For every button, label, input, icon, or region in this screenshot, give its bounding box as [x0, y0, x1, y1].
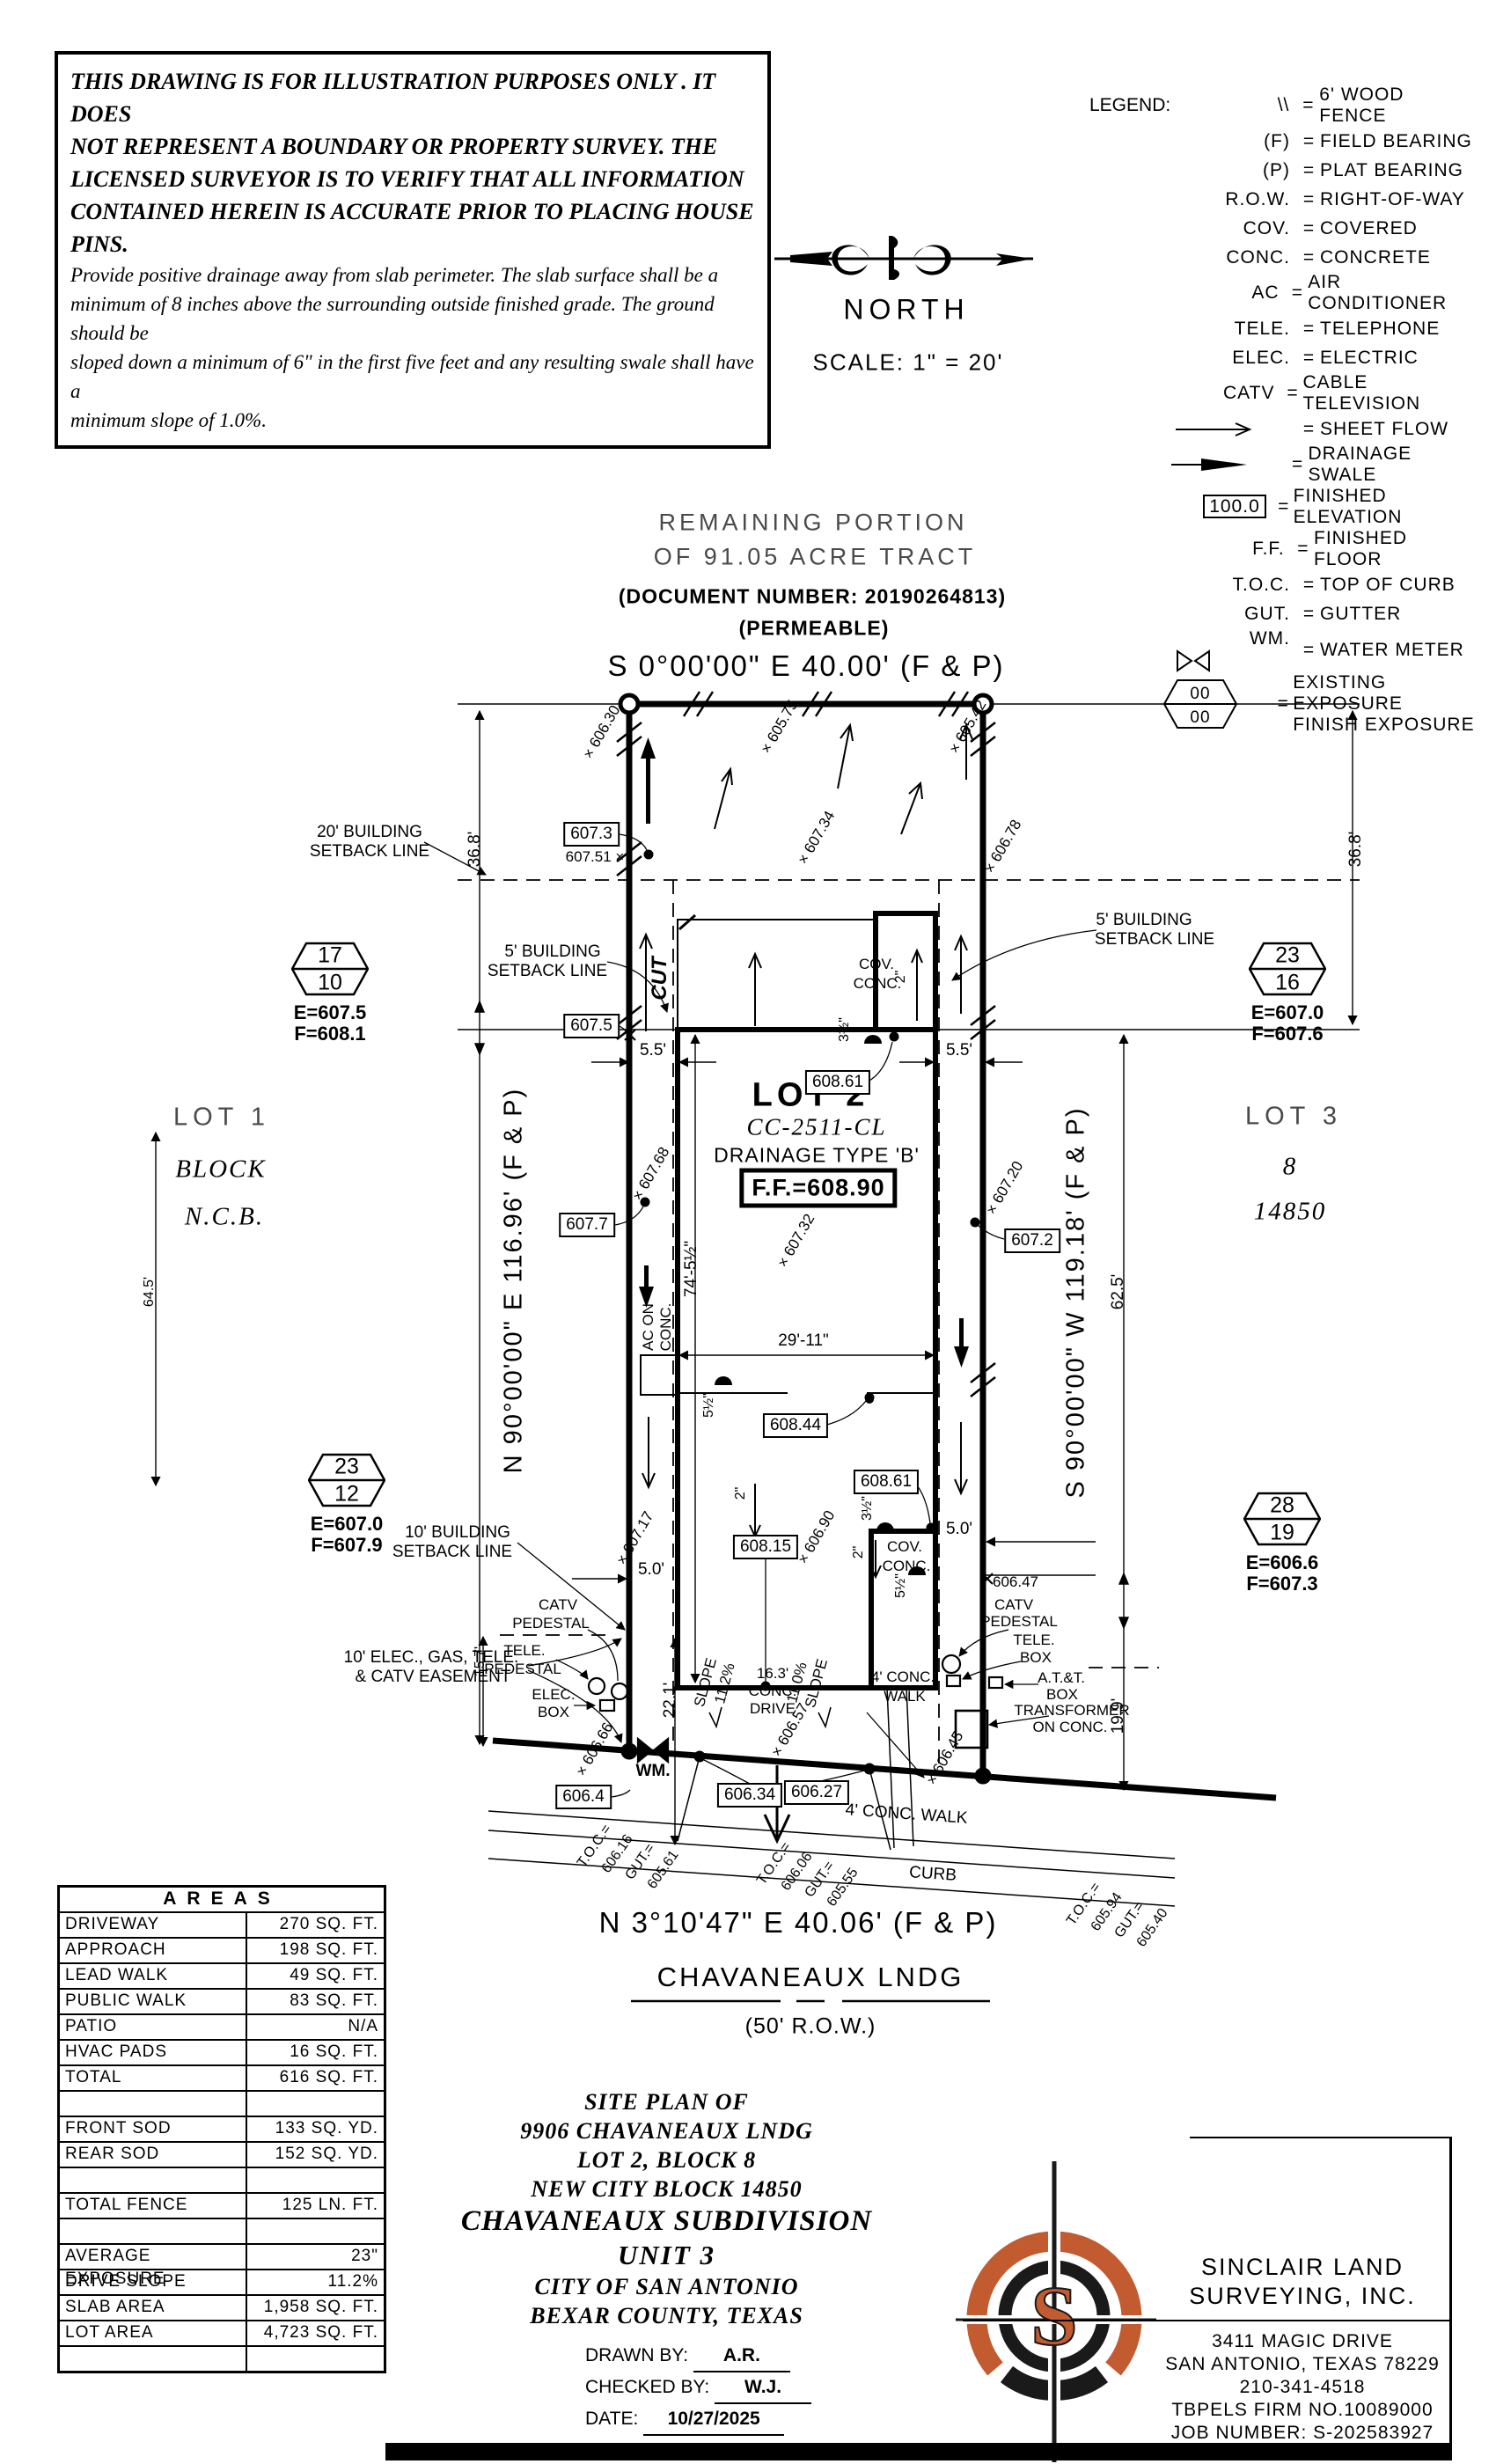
tele-box-icon: [947, 1676, 960, 1686]
areas-row-label: [60, 2168, 247, 2192]
areas-title-text: AREAS: [163, 1888, 281, 1911]
plan-label: 5½": [701, 1393, 717, 1418]
date-value: 10/27/2025: [643, 2404, 784, 2436]
plan-label: N.C.B.: [185, 1203, 264, 1232]
legend-equals: =: [1272, 693, 1293, 715]
plan-label: 62.5': [1109, 1274, 1128, 1310]
areas-row: PATION/A: [60, 2013, 384, 2039]
areas-row: HVAC PADS16 SQ. FT.: [60, 2039, 384, 2064]
plan-label: 5' BUILDING: [1096, 911, 1192, 930]
areas-row-value: 616 SQ. FT.: [247, 2066, 384, 2090]
legend-equals: =: [1287, 454, 1309, 475]
legend-equals: =: [1297, 319, 1320, 340]
areas-row-value: 198 SQ. FT.: [247, 1939, 384, 1962]
areas-row-label: TOTAL FENCE: [60, 2194, 247, 2218]
areas-row: [60, 2218, 384, 2243]
exposure-hex-label: 17: [318, 943, 342, 969]
firm-name: SINCLAIR LAND: [1153, 2253, 1452, 2282]
areas-row-label: PATIO: [60, 2015, 247, 2039]
exposure-hex-label: E=606.6: [1246, 1551, 1319, 1574]
legend-equals: =: [1292, 539, 1314, 560]
areas-table: AREAS DRIVEWAY270 SQ. FT.APPROACH198 SQ.…: [57, 1885, 386, 2373]
exposure-hex-label: 23: [334, 1455, 359, 1480]
plan-label: 607.7: [559, 1213, 615, 1237]
plan-label: 5' BUILDING: [504, 942, 600, 962]
plan-label: TELE.: [1013, 1632, 1054, 1649]
plan-label: (PERMEABLE): [739, 617, 890, 641]
legend-item: LEGEND:\\=6' WOOD FENCE: [1089, 84, 1477, 127]
areas-row: APPROACH198 SQ. FT.: [60, 1937, 384, 1962]
plan-label: 16.3': [757, 1665, 788, 1683]
plan-label: BLOCK: [175, 1155, 266, 1184]
areas-row-label: REAR SOD: [60, 2143, 247, 2167]
areas-row: TOTAL616 SQ. FT.: [60, 2064, 384, 2090]
legend-abbr: COV.: [1174, 218, 1297, 239]
areas-row: [60, 2167, 384, 2192]
drawn-by-value: A.R.: [693, 2341, 790, 2372]
legend-desc: PLAT BEARING: [1320, 160, 1463, 181]
legend-item: =DRAINAGE SWALE: [1089, 444, 1477, 486]
areas-row-label: HVAC PADS: [60, 2041, 247, 2064]
legend-desc: FINISHED FLOOR: [1314, 528, 1477, 570]
legend-item: =SHEET FLOW: [1089, 414, 1477, 444]
legend-desc: TOP OF CURB: [1320, 575, 1456, 596]
legend-desc: FINISHED ELEVATION: [1294, 486, 1477, 528]
legend-item: F.F.=FINISHED FLOOR: [1089, 528, 1477, 570]
areas-row-value: [247, 2347, 384, 2371]
plan-label: 608.44: [763, 1413, 828, 1438]
drawn-by-label: DRAWN BY:: [585, 2345, 688, 2365]
catv-pedestal-icon: [942, 1655, 960, 1673]
areas-row: AVERAGE EXPOSURE23": [60, 2243, 384, 2269]
areas-row-value: [247, 2219, 384, 2243]
legend-abbr: AC: [1170, 282, 1287, 304]
areas-row: DRIVEWAY270 SQ. FT.: [60, 1911, 384, 1937]
date-label: DATE:: [585, 2409, 638, 2429]
plan-label: BOX: [1020, 1649, 1052, 1667]
areas-row-label: DRIVEWAY: [60, 1913, 247, 1937]
legend-equals: =: [1297, 247, 1320, 268]
title-line: 9906 CHAVANEAUX LNDG: [436, 2116, 898, 2145]
legend-desc: RIGHT-OF-WAY: [1320, 189, 1465, 210]
plan-label: 22.1': [661, 1683, 680, 1719]
lot-boundary: [458, 704, 1360, 1798]
firm-phone: 210-341-4518: [1153, 2376, 1452, 2399]
legend-equals: =: [1273, 496, 1294, 517]
legend-equals: =: [1287, 282, 1309, 304]
legend-item: COV.=COVERED: [1089, 214, 1477, 243]
plan-label: (DOCUMENT NUMBER: 20190264813): [619, 585, 1006, 609]
title-line: SITE PLAN OF: [436, 2087, 898, 2116]
legend-desc: FIELD BEARING: [1320, 131, 1472, 152]
plan-label: S 0°00'00" E 40.00' (F & P): [607, 649, 1004, 683]
areas-row-value: 16 SQ. FT.: [247, 2041, 384, 2064]
plan-label: OF 91.05 ACRE TRACT: [654, 544, 977, 571]
disclaimer-paragraph: THIS DRAWING IS FOR ILLUSTRATION PURPOSE…: [70, 65, 755, 260]
plan-label: 4' CONC.: [871, 1668, 935, 1686]
plan-label: BOX: [1046, 1686, 1078, 1704]
legend-desc: 6' WOOD FENCE: [1319, 84, 1477, 127]
areas-row-label: LOT AREA: [60, 2321, 247, 2345]
legend-equals: =: [1297, 348, 1320, 369]
north-label: NORTH: [843, 294, 969, 326]
city-line: CITY OF SAN ANTONIO: [436, 2272, 898, 2301]
plan-label: COV.: [887, 1538, 922, 1556]
legend-abbr: CATV: [1168, 383, 1282, 404]
areas-row: TOTAL FENCE125 LN. FT.: [60, 2192, 384, 2218]
plan-label: 2": [851, 1546, 867, 1559]
title-line: NEW CITY BLOCK 14850: [436, 2174, 898, 2204]
areas-row-label: [60, 2092, 247, 2116]
legend-equals: =: [1297, 131, 1320, 152]
hex-icon: 0000: [1163, 678, 1272, 730]
areas-row-value: 133 SQ. YD.: [247, 2117, 384, 2141]
firm-block: SINCLAIR LAND SURVEYING, INC. 3411 MAGIC…: [1153, 2253, 1452, 2445]
legend-abbr: ELEC.: [1174, 348, 1297, 369]
plan-label: 608.61: [854, 1470, 919, 1494]
exposure-hex-label: 28: [1270, 1493, 1294, 1519]
areas-row-label: PUBLIC WALK: [60, 1990, 247, 2013]
areas-row-value: 270 SQ. FT.: [247, 1913, 384, 1937]
tele-pedestal-icon: [589, 1678, 605, 1694]
plan-label: CATV: [539, 1596, 577, 1614]
plan-label: WM.: [635, 1762, 670, 1781]
areas-row: DRIVE SLOPE11.2%: [60, 2269, 384, 2294]
plan-label: 3½": [860, 1496, 876, 1521]
areas-row-label: [60, 2219, 247, 2243]
exposure-hex-label: F=607.3: [1246, 1573, 1317, 1595]
plan-label: TELE.: [503, 1642, 545, 1660]
legend-title: LEGEND:: [1089, 95, 1174, 116]
plan-label: 607.5: [563, 1014, 620, 1038]
exposure-hex-label: 12: [334, 1482, 359, 1507]
plan-label: 29'-11": [778, 1331, 829, 1351]
areas-row-label: SLAB AREA: [60, 2296, 247, 2320]
plan-label: 10' BUILDING: [405, 1523, 510, 1543]
plan-label: S 90°00'00" W 119.18' (F & P): [1062, 1106, 1091, 1498]
areas-row-label: [60, 2347, 247, 2371]
plan-label: CUT: [648, 957, 672, 1000]
exposure-hex-label: F=607.6: [1251, 1023, 1323, 1045]
plan-label: ELEC.: [532, 1686, 575, 1704]
areas-row: SLAB AREA1,958 SQ. FT.: [60, 2294, 384, 2320]
plan-label: ON CONC.: [1033, 1719, 1108, 1736]
areas-row: REAR SOD152 SQ. YD.: [60, 2141, 384, 2167]
plan-label: 606.27: [784, 1780, 849, 1805]
areas-row-value: 49 SQ. FT.: [247, 1964, 384, 1988]
legend-abbr: R.O.W.: [1174, 189, 1297, 210]
areas-row: LEAD WALK49 SQ. FT.: [60, 1962, 384, 1988]
elec-box-icon: [600, 1700, 614, 1711]
areas-row-label: AVERAGE EXPOSURE: [60, 2245, 247, 2269]
plan-label: (50' R.O.W.): [745, 2014, 876, 2040]
firm-name: SURVEYING, INC.: [1153, 2282, 1452, 2311]
plan-label: REMAINING PORTION: [658, 510, 967, 537]
plan-label: 5.0': [638, 1560, 664, 1580]
legend-item: CONC.=CONCRETE: [1089, 243, 1477, 272]
legend-equals: =: [1297, 189, 1320, 210]
legend-desc: WATER METER: [1320, 640, 1464, 661]
plan-label: CONC.: [657, 1303, 675, 1352]
legend-desc: SHEET FLOW: [1320, 419, 1448, 440]
svg-text:00: 00: [1191, 708, 1211, 727]
areas-row-value: 11.2%: [247, 2270, 384, 2294]
areas-row-value: 4,723 SQ. FT.: [247, 2321, 384, 2345]
subdivision-name: CHAVANEAUX SUBDIVISION: [436, 2204, 898, 2239]
sinclair-logo: S: [952, 2158, 1160, 2464]
areas-row: FRONT SOD133 SQ. YD.: [60, 2116, 384, 2141]
legend-abbr: GUT.: [1174, 604, 1297, 625]
exposure-hex-label: 10: [318, 971, 342, 996]
plan-label: 2": [733, 1487, 749, 1500]
legend-abbr: T.O.C.: [1174, 575, 1297, 596]
plan-label: 607.51 ×: [566, 848, 625, 866]
legend-desc: TELEPHONE: [1320, 319, 1440, 340]
county-line: BEXAR COUNTY, TEXAS: [436, 2301, 898, 2330]
legend-desc: EXISTING EXPOSUREFINISH EXPOSURE: [1293, 672, 1477, 736]
legend-desc: GUTTER: [1320, 604, 1401, 625]
checked-by-value: W.J.: [715, 2372, 811, 2404]
plan-label: A.T.&T.: [1038, 1669, 1085, 1687]
legend-equals: =: [1281, 383, 1302, 404]
slope-symbol: [709, 1707, 722, 1727]
checked-by-label: CHECKED BY:: [585, 2377, 709, 2397]
legend-item: (P)=PLAT BEARING: [1089, 156, 1477, 185]
legend-item: 100.0=FINISHED ELEVATION: [1089, 486, 1477, 528]
plan-label: SETBACK LINE: [310, 842, 429, 862]
exposure-hex-label: 23: [1275, 943, 1300, 969]
areas-row-value: N/A: [247, 2015, 384, 2039]
areas-row-label: APPROACH: [60, 1939, 247, 1962]
areas-row: LOT AREA4,723 SQ. FT.: [60, 2320, 384, 2345]
firm-address: 3411 MAGIC DRIVE: [1153, 2330, 1452, 2353]
plan-label: F.F.=608.90: [739, 1169, 897, 1208]
legend-item: AC=AIR CONDITIONER: [1089, 272, 1477, 314]
north-arrow-icon: [773, 231, 1037, 287]
arrow-open-icon: [1174, 421, 1297, 438]
plan-label: CURB: [908, 1863, 957, 1886]
legend-abbr: TELE.: [1174, 319, 1297, 340]
legend-equals: =: [1296, 95, 1319, 116]
plan-label: SETBACK LINE: [392, 1543, 512, 1562]
legend-item: WM.=WATER METER: [1089, 628, 1477, 672]
signature-block: DRAWN BY: A.R. CHECKED BY: W.J. DATE: 10…: [436, 2341, 898, 2436]
legend-equals: =: [1297, 218, 1320, 239]
firm-frame-top: [1190, 2137, 1452, 2138]
plan-label: 36.8': [1346, 832, 1366, 868]
plan-label: AC ON: [640, 1303, 657, 1351]
legend-item: R.O.W.=RIGHT-OF-WAY: [1089, 185, 1477, 214]
plan-label: SETBACK LINE: [1095, 930, 1214, 950]
exposure-hex-label: E=607.0: [311, 1513, 384, 1536]
plan-label: 64.5': [142, 1277, 158, 1307]
plan-label: 5.5': [946, 1041, 972, 1060]
legend-desc: DRAINAGE SWALE: [1309, 444, 1478, 486]
wm-icon: WM.: [1174, 628, 1297, 672]
plan-label: PEDESTAL: [980, 1613, 1058, 1631]
legend-desc: CABLE TELEVISION: [1302, 372, 1477, 414]
exposure-hex-label: E=607.0: [1251, 1001, 1324, 1024]
firm-address: SAN ANTONIO, TEXAS 78229: [1153, 2353, 1452, 2376]
svg-text:00: 00: [1191, 685, 1211, 703]
areas-row-value: [247, 2168, 384, 2192]
legend-desc: AIR CONDITIONER: [1308, 272, 1477, 314]
firm-frame-right: [1449, 2137, 1452, 2453]
plan-label: CATV: [994, 1596, 1033, 1614]
fence-icon: \\: [1174, 95, 1297, 116]
areas-row-value: 125 LN. FT.: [247, 2194, 384, 2218]
legend-item: (F)=FIELD BEARING: [1089, 127, 1477, 156]
legend-item: ELEC.=ELECTRIC: [1089, 343, 1477, 372]
areas-row-value: [247, 2092, 384, 2116]
legend-equals: =: [1297, 419, 1320, 440]
box-icon: 100.0: [1164, 496, 1273, 517]
arrow-solid-icon: [1170, 456, 1287, 473]
bottom-border-bar: [385, 2443, 1452, 2460]
plan-label: 607.2: [1004, 1228, 1060, 1253]
dimension-lines: [156, 711, 1353, 1844]
areas-row: [60, 2345, 384, 2371]
plan-label: 606.34: [717, 1783, 782, 1808]
plan-label: 608.15: [733, 1535, 798, 1559]
plan-label: 8: [1283, 1153, 1298, 1182]
areas-row-label: LEAD WALK: [60, 1964, 247, 1988]
areas-row-value: 1,958 SQ. FT.: [247, 2296, 384, 2320]
areas-row-label: DRIVE SLOPE: [60, 2270, 247, 2294]
plan-label: 608.61: [805, 1070, 870, 1095]
plan-label: 5½": [893, 1573, 909, 1598]
legend-equals: =: [1297, 160, 1320, 181]
plan-label: 5.0': [946, 1520, 972, 1539]
plan-label: N 3°10'47" E 40.06' (F & P): [599, 1906, 998, 1940]
plan-label: CONC.: [854, 975, 902, 993]
plan-label: BOX: [538, 1704, 569, 1721]
plan-label: 5.5': [640, 1041, 666, 1060]
legend-item: GUT.=GUTTER: [1089, 599, 1477, 628]
legend-item: T.O.C.=TOP OF CURB: [1089, 570, 1477, 599]
plan-label: WALK: [884, 1688, 926, 1705]
plan-label: COV.: [859, 956, 894, 973]
legend-desc: ELECTRIC: [1320, 348, 1419, 369]
svg-text:S: S: [1030, 2269, 1077, 2363]
water-meter-icon: [638, 1739, 668, 1762]
att-box-icon: [989, 1677, 1002, 1688]
exposure-hex-label: 16: [1275, 971, 1300, 996]
job-number: JOB NUMBER: S-202583927: [1153, 2422, 1452, 2445]
firm-number: TBPELS FIRM NO.10089000: [1153, 2399, 1452, 2422]
plan-label: 606.4: [555, 1785, 612, 1809]
legend-item: CATV=CABLE TELEVISION: [1089, 372, 1477, 414]
title-line: LOT 2, BLOCK 8: [436, 2145, 898, 2174]
plan-label: 14850: [1254, 1198, 1327, 1227]
plan-label: 606.47: [993, 1573, 1038, 1591]
plan-label: TRANSFORMER: [1014, 1702, 1129, 1720]
site-plan-sheet: THIS DRAWING IS FOR ILLUSTRATION PURPOSE…: [0, 0, 1496, 2464]
legend-abbr: (F): [1174, 131, 1297, 152]
legend-item: 0000=EXISTING EXPOSUREFINISH EXPOSURE: [1089, 672, 1477, 736]
legend-equals: =: [1297, 640, 1320, 661]
plan-label: CC-2511-CL: [746, 1114, 886, 1141]
exposure-hex-label: F=608.1: [294, 1023, 365, 1045]
plan-label: LOT 3: [1245, 1103, 1342, 1132]
areas-title: AREAS: [60, 1888, 384, 1911]
exposure-hex-label: F=607.9: [311, 1534, 382, 1557]
legend-abbr: (P): [1174, 160, 1297, 181]
plan-label: 3½": [837, 1017, 853, 1042]
legend-desc: COVERED: [1320, 218, 1418, 239]
drainage-note: Provide positive drainage away from slab…: [70, 260, 755, 435]
areas-row: PUBLIC WALK83 SQ. FT.: [60, 1988, 384, 2013]
title-block: SITE PLAN OF 9906 CHAVANEAUX LNDG LOT 2,…: [436, 2087, 898, 2436]
scale-label: SCALE: 1" = 20': [813, 349, 1004, 377]
plan-label: LOT 1: [173, 1104, 270, 1133]
slope-symbol: [818, 1707, 831, 1727]
plan-label: DRAINAGE TYPE 'B': [714, 1144, 920, 1168]
exposure-hex-label: E=607.5: [294, 1001, 367, 1024]
areas-row-value: 23": [247, 2245, 384, 2269]
plan-label: CONC.: [883, 1558, 931, 1575]
plan-label: 36.8': [466, 832, 485, 868]
areas-row-label: TOTAL: [60, 2066, 247, 2090]
plan-label: SETBACK LINE: [488, 962, 607, 981]
legend-desc: CONCRETE: [1320, 247, 1431, 268]
legend: LEGEND:\\=6' WOOD FENCE(F)=FIELD BEARING…: [1089, 84, 1477, 736]
legend-abbr: CONC.: [1174, 247, 1297, 268]
plan-label: 607.3: [563, 822, 620, 847]
plan-label: 20' BUILDING: [317, 823, 422, 842]
unit-line: UNIT 3: [436, 2239, 898, 2272]
plan-label: PEDESTAL: [512, 1615, 590, 1632]
legend-abbr: F.F.: [1171, 539, 1291, 560]
legend-item: TELE.=TELEPHONE: [1089, 314, 1477, 343]
areas-row-value: 152 SQ. YD.: [247, 2143, 384, 2167]
plan-label: N 90°00'00" E 116.96' (F & P): [500, 1088, 529, 1474]
exposure-hex-label: 19: [1270, 1521, 1294, 1546]
legend-equals: =: [1297, 604, 1320, 625]
legend-equals: =: [1297, 575, 1320, 596]
areas-row-value: 83 SQ. FT.: [247, 1990, 384, 2013]
areas-row: [60, 2090, 384, 2116]
areas-row-label: FRONT SOD: [60, 2117, 247, 2141]
firm-frame-divider: [963, 2320, 1452, 2321]
plan-label: PEDESTAL: [484, 1661, 561, 1678]
catv-pedestal-icon: [612, 1683, 627, 1699]
plan-label: CHAVANEAUX LNDG: [657, 1962, 964, 1993]
plan-label: 74'-5½": [682, 1241, 701, 1297]
disclaimer-note: THIS DRAWING IS FOR ILLUSTRATION PURPOSE…: [55, 51, 771, 449]
